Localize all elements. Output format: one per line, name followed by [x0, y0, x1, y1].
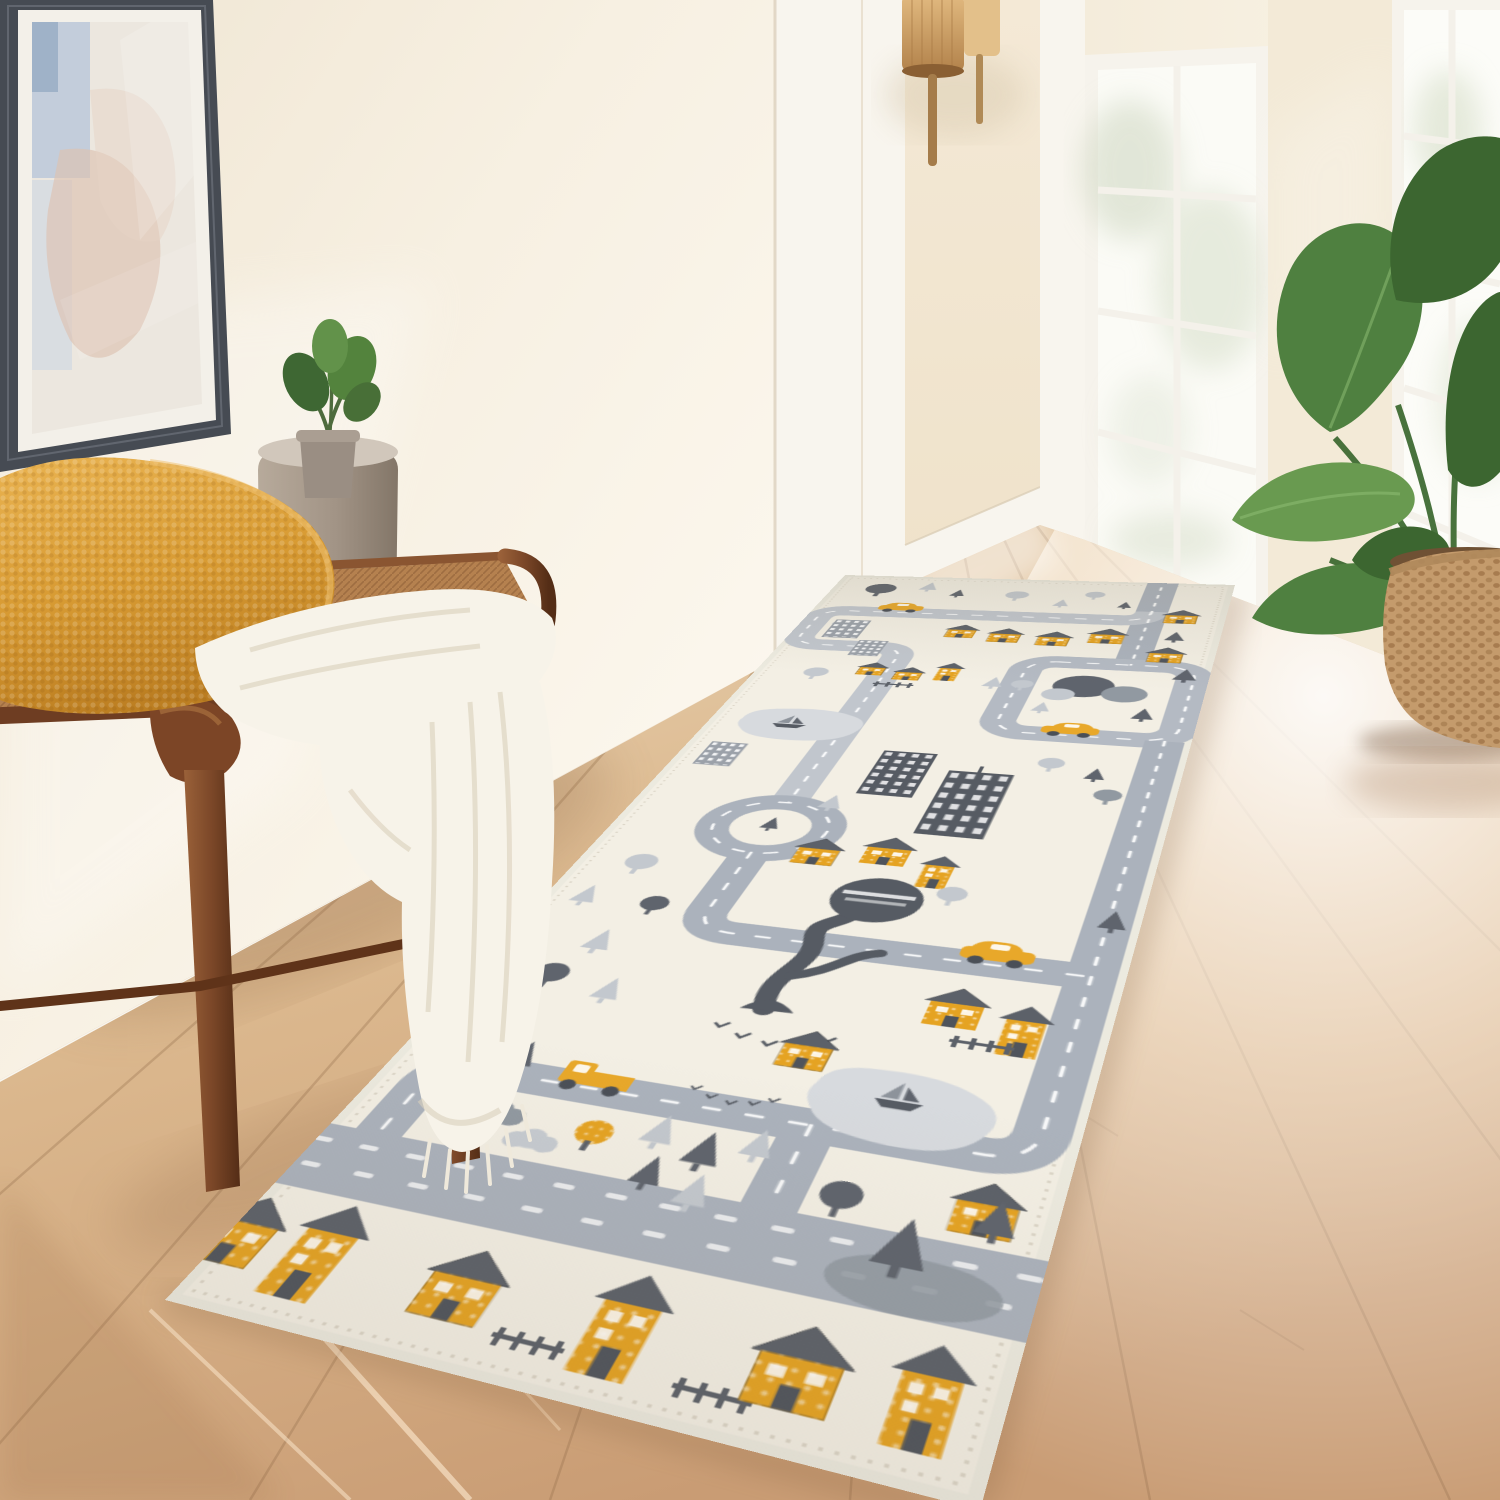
small-plant-leaf: [312, 319, 348, 373]
sconce-stem-front: [928, 74, 937, 166]
small-plant-pot: [300, 438, 356, 498]
throw-blanket: [195, 589, 556, 1192]
artwork-frame: [0, 0, 231, 472]
sconce-shade-back: [964, 0, 1000, 56]
scene: [0, 0, 1500, 1500]
sconce-stem-back: [976, 54, 983, 124]
corner-vignette: [0, 1180, 280, 1500]
big-plant-leaf: [1446, 292, 1500, 487]
big-plant-leaf: [1390, 136, 1500, 303]
sconce: [885, 0, 1025, 166]
big-plant: [1232, 136, 1500, 748]
foreground: [0, 0, 1500, 1500]
big-plant-leaf: [1232, 462, 1415, 541]
